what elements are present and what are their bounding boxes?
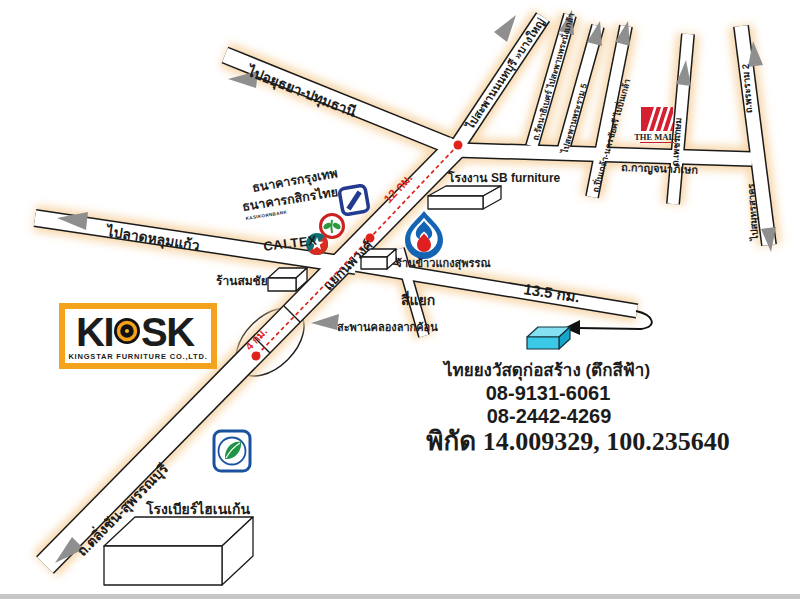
kiosk-subtitle: KINGSTAR FURNITURE CO.,LTD. xyxy=(68,352,207,361)
kiosk-logo: KI SK KINGSTAR FURNITURE CO.,LTD. xyxy=(62,306,214,366)
route-dot-bridge xyxy=(252,352,261,361)
heineken-brewery-building xyxy=(104,517,253,585)
destination-phone-2: 08-2442-4269 xyxy=(487,405,612,427)
route-dot-mall-junction xyxy=(454,141,463,150)
sb-factory-building xyxy=(428,186,501,209)
label-rice-shop: ร้านข้าวแกงสุพรรณ xyxy=(396,257,491,271)
label-sb-factory: โรงงาน SB furniture xyxy=(447,170,561,185)
label-heineken-brewery: โรงเบียร์ไฮเนเก้น xyxy=(145,500,250,517)
label-bridge: สะพานคลองลากค้อน xyxy=(337,321,438,333)
destination-phone-1: 08-9131-6061 xyxy=(486,382,611,404)
destination-coordinates: พิกัด 14.009329, 100.235640 xyxy=(426,427,729,456)
map-stage: THE MALL KI SK KINGSTAR FURNITURE CO.,LT… xyxy=(0,0,800,599)
bottom-edge-strip xyxy=(0,594,800,599)
bangkok-bank-logo-icon xyxy=(339,185,369,215)
label-somchai-shop: ร้านสมชัย xyxy=(216,274,268,288)
kiosk-wordmark-right: SK xyxy=(141,310,195,354)
label-si-yaek: สี่แยก xyxy=(401,290,436,308)
kasikorn-bank-logo-icon xyxy=(321,215,344,238)
map-canvas: THE MALL KI SK KINGSTAR FURNITURE CO.,LT… xyxy=(0,0,800,599)
destination-name: ไทยยงวัสดุก่อสร้าง (ตึกสีฟ้า) xyxy=(442,360,650,381)
bangchak-logo-icon xyxy=(214,431,250,471)
kiosk-wordmark-left: KI xyxy=(76,310,113,354)
kiosk-o-icon xyxy=(114,318,140,344)
